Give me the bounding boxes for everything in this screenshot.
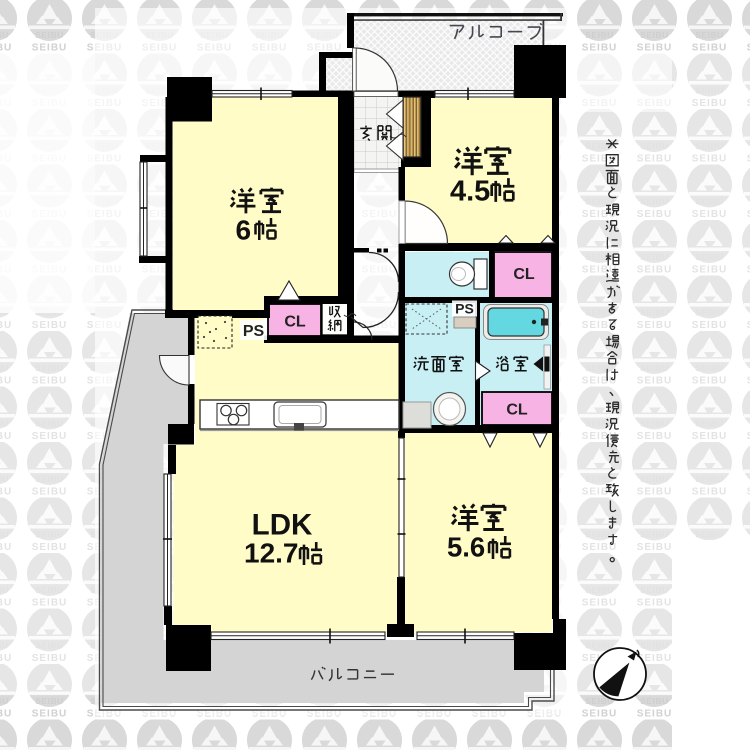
svg-text:CL: CL — [513, 266, 535, 283]
svg-text:6: 6 — [236, 215, 252, 246]
svg-text:CL: CL — [506, 402, 528, 419]
svg-text:PS: PS — [455, 301, 474, 317]
svg-text:CL: CL — [284, 314, 306, 331]
svg-text:12.7: 12.7 — [244, 538, 299, 569]
svg-text:4.5: 4.5 — [450, 176, 490, 208]
svg-text:PS: PS — [243, 323, 265, 340]
svg-text:5.6: 5.6 — [447, 532, 485, 563]
